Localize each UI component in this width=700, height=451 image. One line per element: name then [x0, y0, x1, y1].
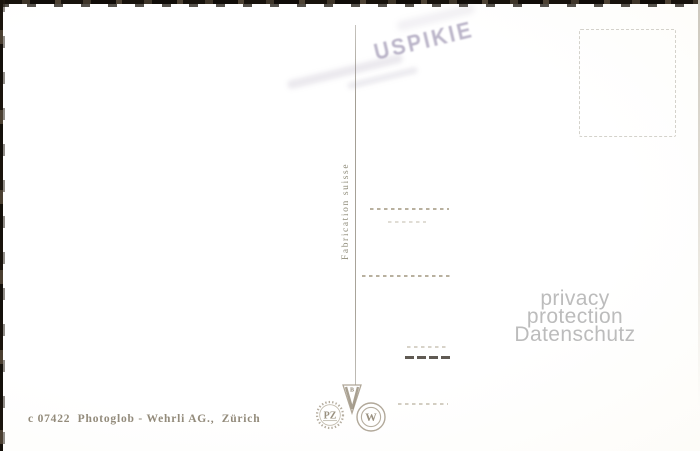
fabrication-suisse-label: Fabrication suisse: [341, 172, 351, 260]
address-line-faint: [398, 403, 448, 405]
postcard-back-scan: Fabrication suisse USPIKIE privacy prote…: [0, 0, 700, 451]
faded-rubber-stamp: USPIKIE: [276, 0, 494, 116]
pennant-top-letter: B: [350, 388, 354, 394]
address-line-faint: [388, 221, 426, 223]
stamp-text: USPIKIE: [372, 17, 477, 67]
scan-edge-left-ragged: [3, 0, 5, 451]
stamp-ink-smudge: [396, 3, 476, 31]
stamp-ink-smudge: [287, 53, 404, 89]
address-line: [362, 275, 450, 277]
postage-stamp-box: [579, 29, 676, 137]
w-logo-letter: W: [365, 412, 377, 424]
pz-logo-letters: PZ: [324, 411, 337, 422]
scan-edge-top-ragged: [0, 4, 700, 7]
address-line-faint: [407, 346, 449, 348]
privacy-watermark-line1: privacy protection: [490, 290, 660, 326]
publisher-imprint: c 07422 Photoglob - Wehrli AG., Zürich: [28, 413, 260, 425]
privacy-watermark: privacy protection Datenschutz: [490, 290, 660, 344]
w-publisher-logo-icon: W: [355, 401, 387, 433]
address-line-dark: [405, 356, 451, 359]
address-divider-line: [355, 25, 356, 385]
stamp-ink-smudge: [347, 66, 419, 90]
privacy-watermark-line2: Datenschutz: [490, 326, 660, 344]
address-line: [370, 208, 449, 210]
